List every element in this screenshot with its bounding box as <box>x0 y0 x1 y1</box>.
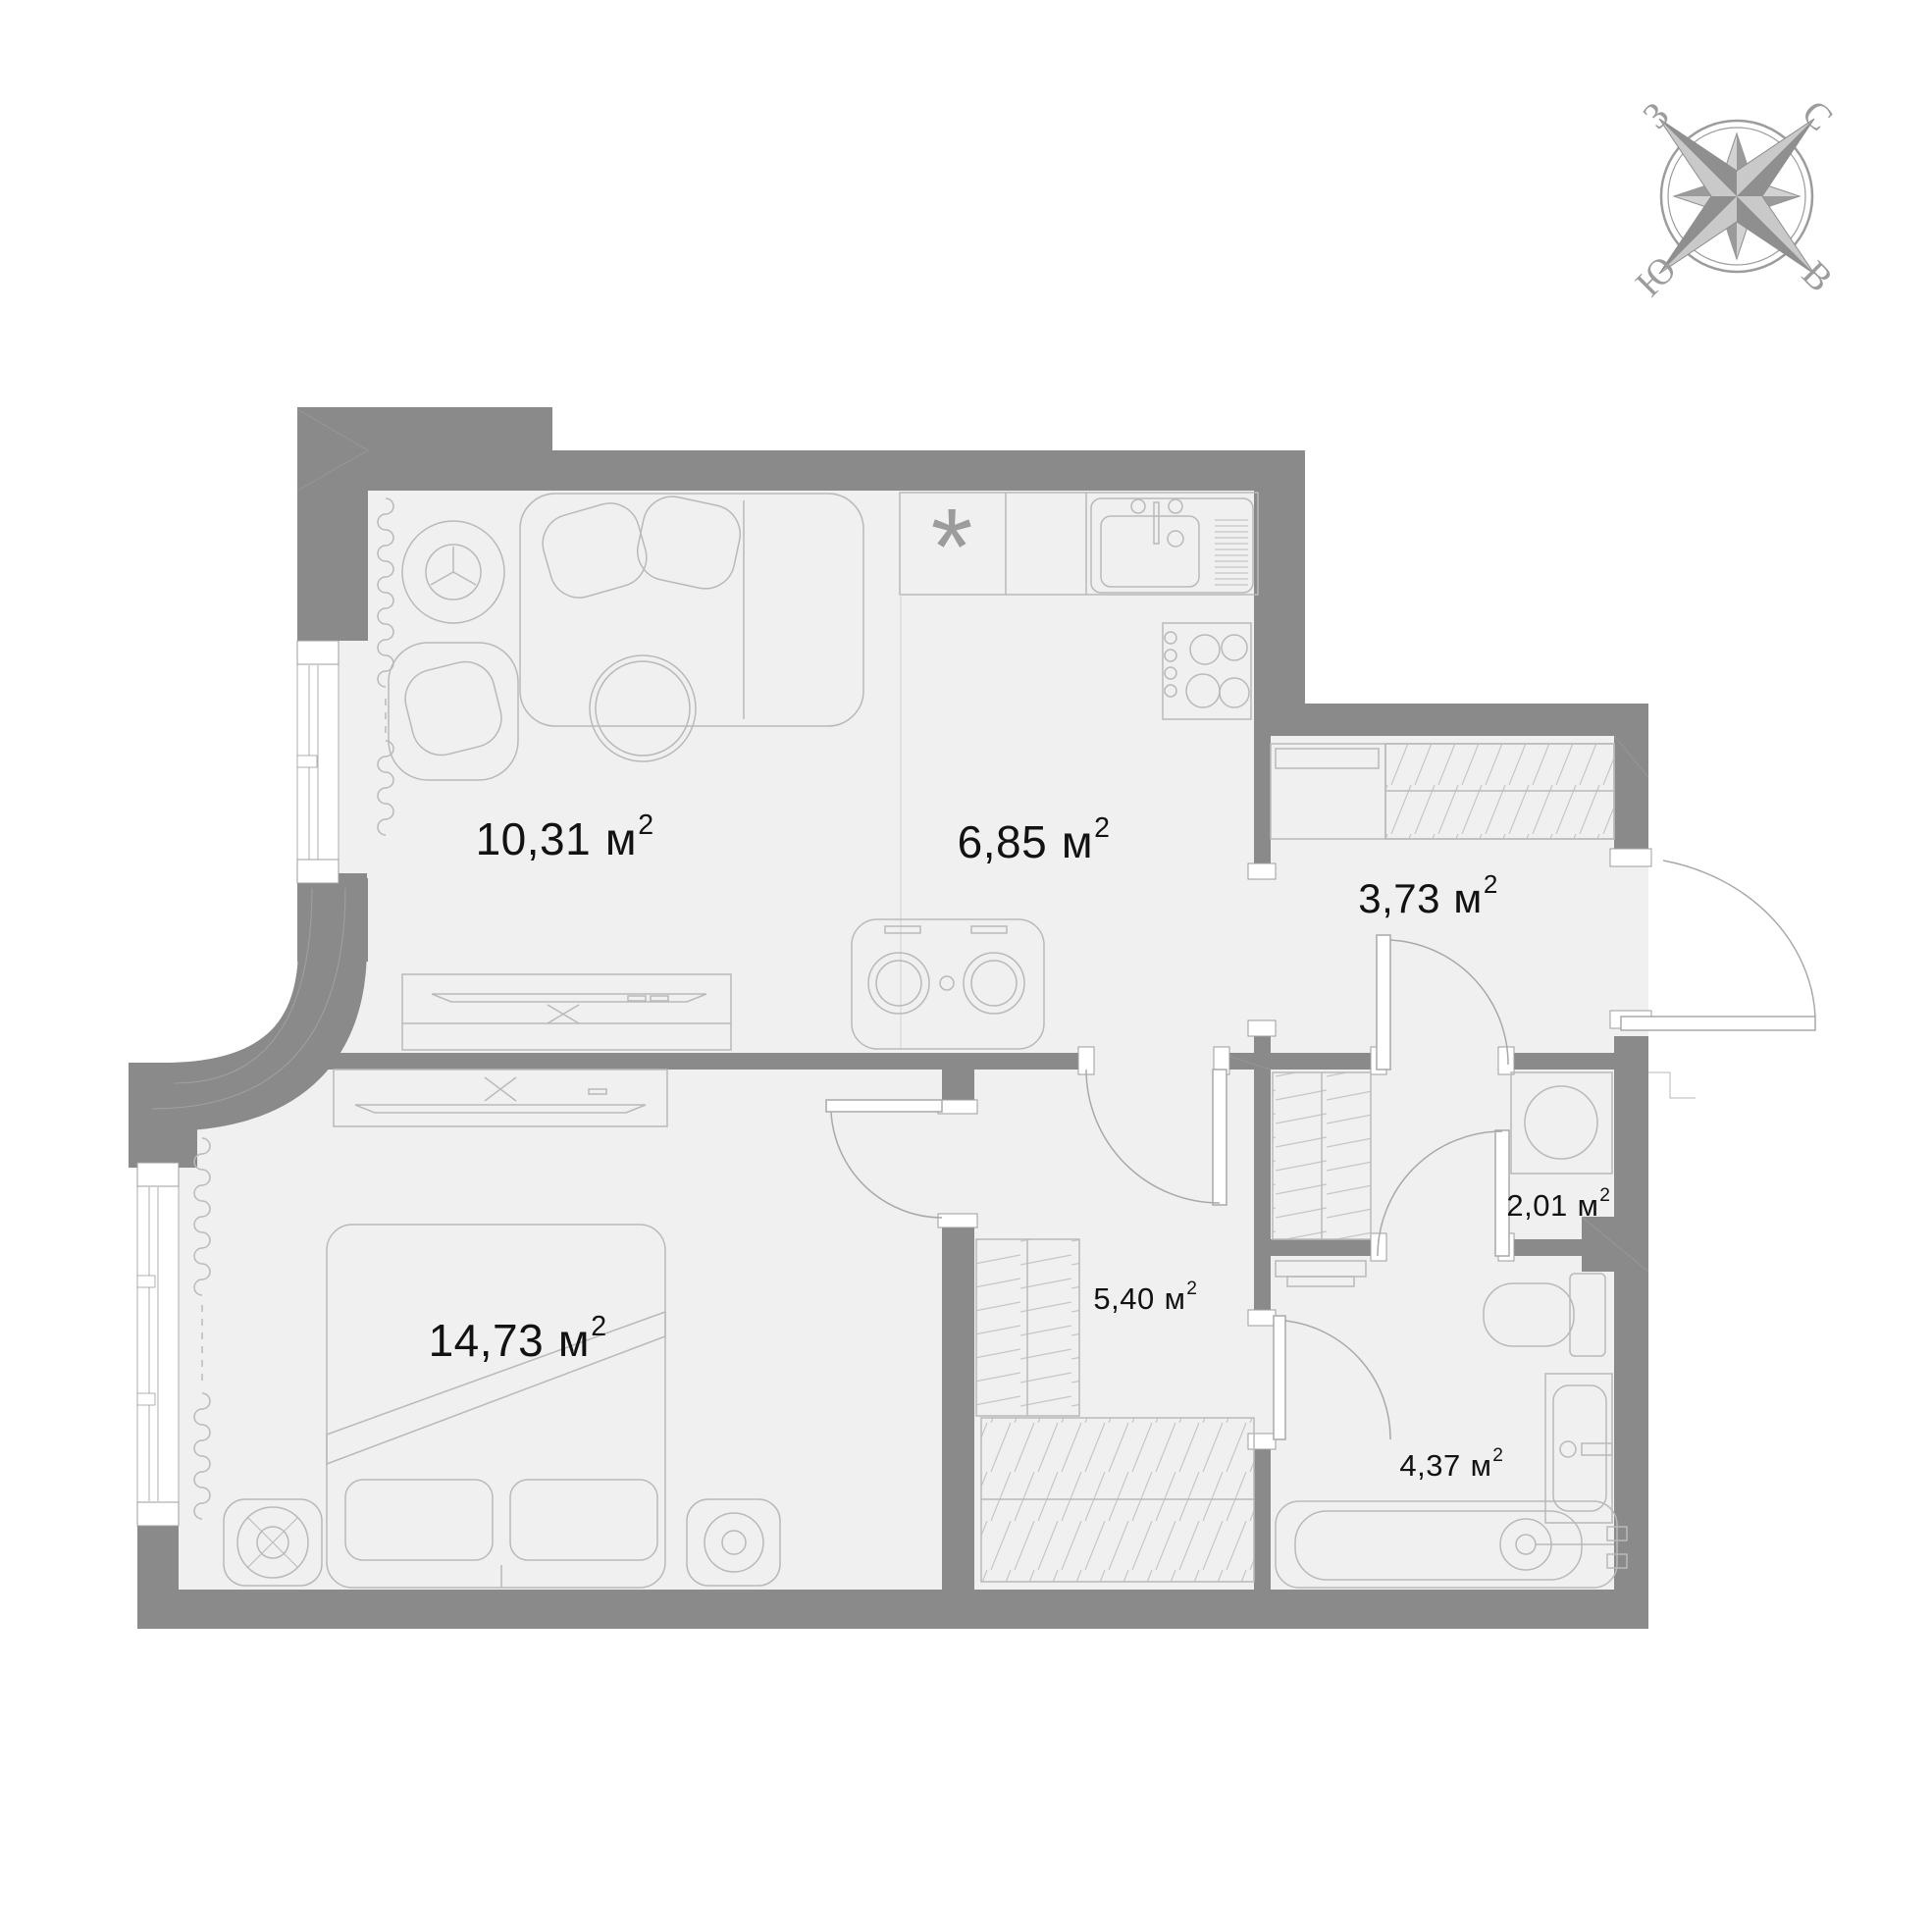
door-leaf <box>826 1100 942 1112</box>
wall-corridor-right-b <box>1254 1439 1271 1590</box>
wall-bottom <box>137 1590 1648 1629</box>
area-unit: м <box>558 1315 590 1366</box>
wall-top <box>368 450 1305 491</box>
floors <box>137 489 1648 1590</box>
jamb <box>938 1214 977 1227</box>
door-leaf <box>1213 1070 1227 1205</box>
wall-bedroom-left-lower <box>137 1526 179 1594</box>
room-label-living: 10,31м2 <box>476 812 653 865</box>
bedroom-window <box>137 1163 179 1526</box>
wall-mid-horizontal-c <box>1504 1053 1614 1070</box>
jamb <box>1248 1310 1276 1326</box>
area-sup: 2 <box>1094 812 1110 844</box>
area-sup: 2 <box>1484 869 1498 899</box>
wall-mid-horizontal-b <box>1220 1053 1377 1070</box>
area-sup: 2 <box>638 809 653 841</box>
area-unit: м <box>1165 1281 1186 1316</box>
door-leaf <box>1621 1017 1815 1030</box>
door-leaf <box>1274 1316 1285 1439</box>
area-sup: 2 <box>591 1311 606 1342</box>
floor-plan-page: * З С В Ю 10,31м2 6,85м2 3,73м2 2,01м2 <box>0 0 1932 1932</box>
area-sup: 2 <box>1492 1445 1503 1466</box>
jamb <box>1498 1047 1514 1074</box>
door-leaf <box>1377 935 1390 1070</box>
entry-door <box>1621 861 1815 1030</box>
room-label-hallway: 3,73м2 <box>1358 875 1497 922</box>
window-mullion <box>297 756 317 767</box>
wall-mid-horizontal-a <box>245 1053 1084 1070</box>
wall-left-upper <box>297 407 368 641</box>
area-value: 3,73 <box>1358 875 1440 921</box>
room-label-corridor: 5,40м2 <box>1093 1281 1196 1317</box>
area-unit: м <box>1062 816 1093 867</box>
wall-right-upper <box>1614 736 1648 851</box>
window-jamb <box>297 860 339 883</box>
window-jamb <box>137 1502 179 1526</box>
wall-kitchen-hall-lower <box>1254 1034 1271 1070</box>
area-value: 2,01 <box>1506 1188 1567 1223</box>
room-label-utility: 2,01м2 <box>1506 1188 1609 1224</box>
compass-rose: З С В Ю <box>1628 92 1840 304</box>
wall-kitchen-right-ext <box>1254 491 1305 736</box>
floor-living-kitchen <box>297 489 1305 1053</box>
kitchen-appliance-marker: * <box>931 487 973 607</box>
area-unit: м <box>1471 1448 1492 1483</box>
floor-plan-svg: * З С В Ю <box>0 0 1932 1932</box>
wall-kitchen-hall-upper <box>1254 736 1271 865</box>
area-value: 10,31 <box>476 813 592 864</box>
room-label-bathroom: 4,37м2 <box>1399 1448 1502 1484</box>
area-value: 5,40 <box>1093 1281 1154 1316</box>
wall-hall-top <box>1254 704 1648 736</box>
area-unit: м <box>605 813 637 864</box>
area-value: 14,73 <box>429 1315 545 1366</box>
wall-corridor-right-a <box>1254 1070 1271 1316</box>
wall-right-mid <box>1614 1036 1648 1217</box>
window-mullion <box>137 1276 155 1287</box>
area-unit: м <box>1453 875 1482 921</box>
area-value: 4,37 <box>1399 1448 1460 1483</box>
room-label-kitchen: 6,85м2 <box>958 815 1110 868</box>
area-sup: 2 <box>1186 1279 1197 1299</box>
window-mullion <box>137 1393 155 1405</box>
jamb <box>1248 1020 1276 1036</box>
area-value: 6,85 <box>958 816 1048 867</box>
room-label-bedroom: 14,73м2 <box>429 1314 606 1367</box>
entry-step-outline <box>1648 1072 1696 1098</box>
wall-right-lower <box>1614 1272 1648 1629</box>
window-jamb <box>137 1163 179 1186</box>
door-arc <box>1663 861 1815 1017</box>
wall-utility-bottom-a <box>1271 1239 1377 1256</box>
jamb <box>1248 863 1276 879</box>
wall-utility-bottom-b <box>1504 1239 1614 1256</box>
area-sup: 2 <box>1599 1185 1610 1206</box>
living-window <box>297 641 339 883</box>
window-jamb <box>297 641 339 664</box>
jamb <box>1610 849 1651 866</box>
wall-bedroom-right-b <box>942 1220 974 1590</box>
area-unit: м <box>1578 1188 1599 1223</box>
jamb <box>938 1100 977 1114</box>
